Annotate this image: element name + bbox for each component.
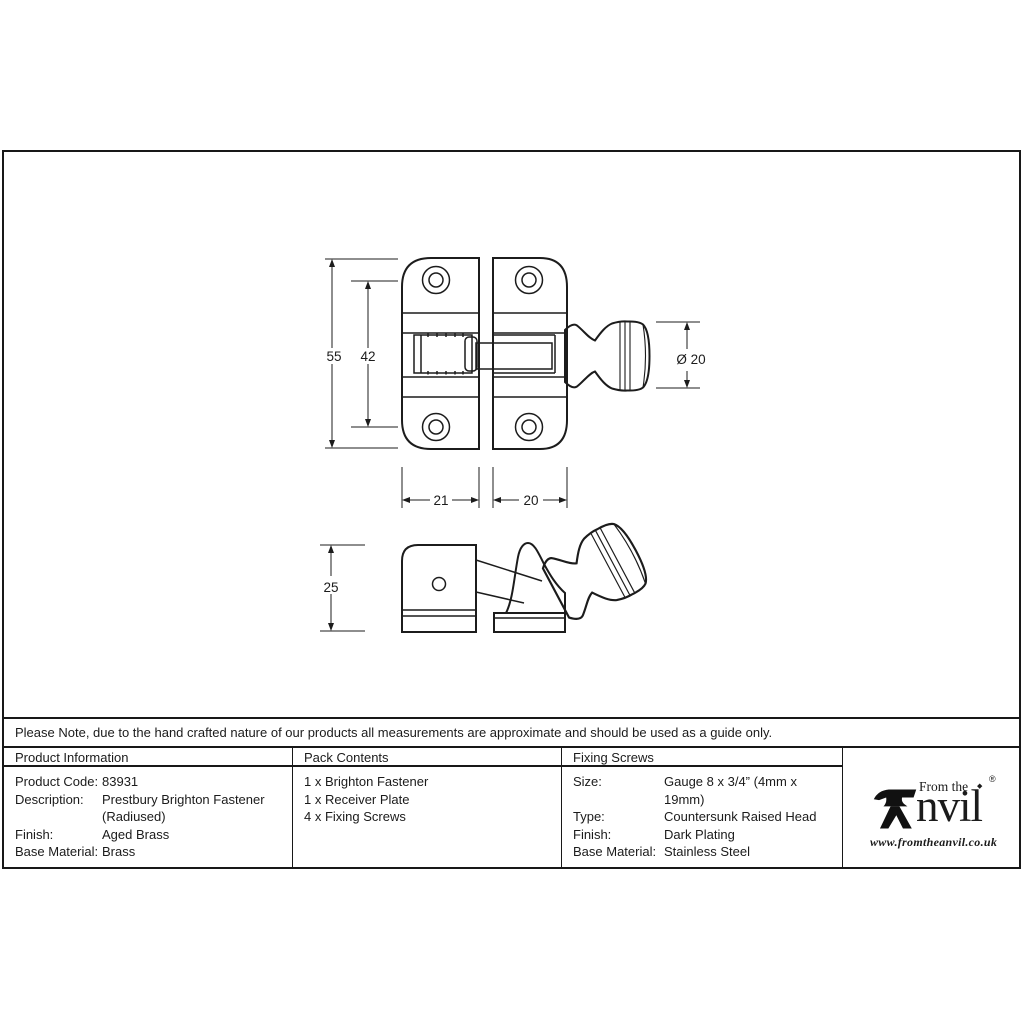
logo-brand-text: nvil: [916, 784, 982, 829]
note-bar: Please Note, due to the hand crafted nat…: [4, 717, 1019, 748]
receiver-hole: [433, 578, 446, 591]
logo-website: www.fromtheanvil.co.uk: [870, 835, 997, 850]
header-product-information: Product Information: [4, 748, 293, 767]
knob-side: [539, 518, 654, 626]
table-row: Finish: Aged Brass: [15, 826, 284, 844]
technical-drawing-area: 55 42 Ø 20: [4, 152, 1019, 717]
table-row: Base Material: Brass: [15, 843, 284, 861]
dim-left-plate-width: 21: [433, 493, 448, 508]
knob-front: [565, 321, 650, 390]
logo: From the ◆ ® nvil www.fromtheanvil.co.uk: [843, 748, 1019, 867]
technical-drawing: 55 42 Ø 20: [4, 152, 1018, 717]
right-plate-opening: [493, 335, 555, 373]
logo-cell: From the ◆ ® nvil www.fromtheanvil.co.uk: [843, 748, 1019, 867]
table-row: Size: Gauge 8 x 3/4” (4mm x 19mm): [573, 773, 834, 808]
row-label: Description:: [15, 791, 102, 809]
dimension-20: 20: [493, 467, 567, 508]
pack-item: 4 x Fixing Screws: [304, 808, 553, 826]
registered-mark: ®: [989, 774, 996, 784]
dim-plate-height: 55: [326, 349, 341, 364]
table-row: Description: Prestbury Brighton Fastener: [15, 791, 284, 809]
row-label: Base Material:: [573, 843, 664, 861]
anvil-icon: [872, 785, 918, 833]
header-fixing-screws: Fixing Screws: [562, 748, 843, 767]
row-value: (Radiused): [102, 808, 166, 826]
table-row: Base Material: Stainless Steel: [573, 843, 834, 861]
side-view: [402, 518, 653, 632]
row-label: Finish:: [573, 826, 664, 844]
table-row: Product Code: 83931: [15, 773, 284, 791]
table-row: (Radiused): [15, 808, 284, 826]
dim-right-plate-width: 20: [523, 493, 538, 508]
front-view: [402, 258, 650, 449]
spec-table: Product Information Pack Contents Fixing…: [4, 748, 1019, 867]
row-value: Gauge 8 x 3/4” (4mm x 19mm): [664, 773, 834, 808]
side-latch-bar: [476, 560, 542, 603]
row-value: Aged Brass: [102, 826, 169, 844]
pack-contents-cell: 1 x Brighton Fastener 1 x Receiver Plate…: [293, 767, 562, 867]
pack-item: 1 x Receiver Plate: [304, 791, 553, 809]
note-text: Please Note, due to the hand crafted nat…: [15, 725, 772, 740]
latch-bar: [476, 343, 552, 369]
row-label: [15, 808, 102, 826]
pack-item: 1 x Brighton Fastener: [304, 773, 553, 791]
receiver-plate: [402, 545, 476, 632]
document-frame: 55 42 Ø 20: [2, 150, 1021, 869]
row-label: Product Code:: [15, 773, 102, 791]
dimension-42: 42: [351, 281, 398, 427]
row-value: Dark Plating: [664, 826, 735, 844]
row-value: Prestbury Brighton Fastener: [102, 791, 265, 809]
fixing-screws-cell: Size: Gauge 8 x 3/4” (4mm x 19mm) Type: …: [562, 767, 843, 867]
row-label: Type:: [573, 808, 664, 826]
table-row: Type: Countersunk Raised Head: [573, 808, 834, 826]
bracket-base: [494, 613, 565, 632]
table-row: Finish: Dark Plating: [573, 826, 834, 844]
row-value: Countersunk Raised Head: [664, 808, 816, 826]
row-label: Finish:: [15, 826, 102, 844]
latch-slot: [414, 334, 472, 375]
dimension-21: 21: [402, 467, 479, 508]
row-value: Stainless Steel: [664, 843, 750, 861]
dimension-knob-diameter: Ø 20: [656, 322, 706, 388]
product-information-cell: Product Code: 83931 Description: Prestbu…: [4, 767, 293, 867]
dim-side-height: 25: [323, 580, 338, 595]
bracket-hump: [506, 543, 565, 613]
header-pack-contents: Pack Contents: [293, 748, 562, 767]
row-value: 83931: [102, 773, 138, 791]
dimension-25: 25: [320, 545, 365, 631]
dim-hole-spacing: 42: [360, 349, 375, 364]
spec-sheet-page: 55 42 Ø 20: [0, 0, 1024, 1024]
row-value: Brass: [102, 843, 135, 861]
dim-knob-diameter: Ø 20: [676, 352, 705, 367]
row-label: Size:: [573, 773, 664, 808]
row-label: Base Material:: [15, 843, 102, 861]
